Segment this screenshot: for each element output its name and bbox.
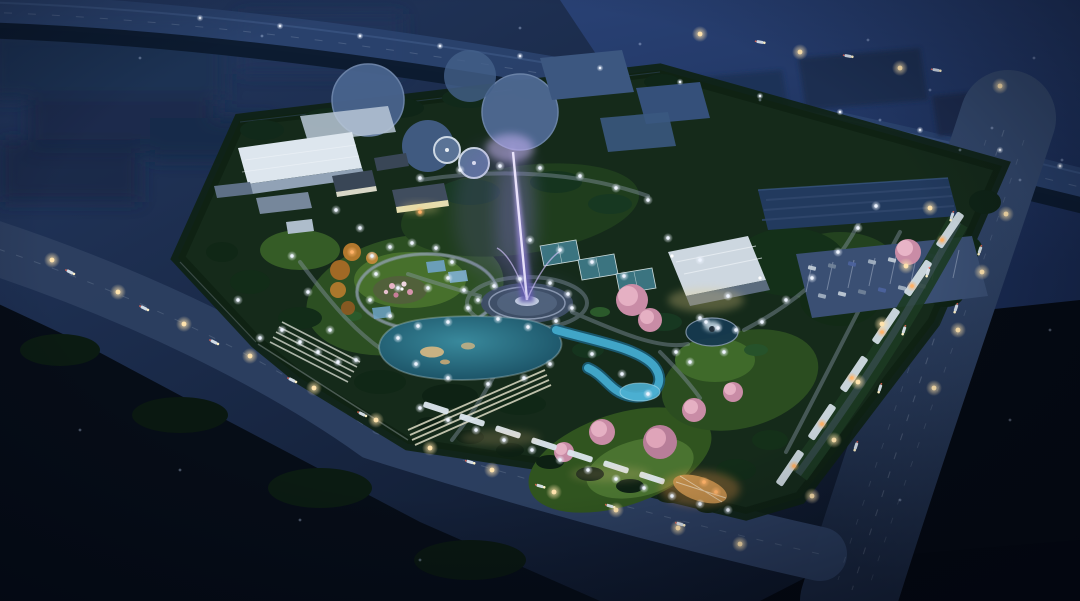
night-aerial-rendering	[0, 0, 1080, 601]
vignette-overlay	[0, 0, 1080, 601]
